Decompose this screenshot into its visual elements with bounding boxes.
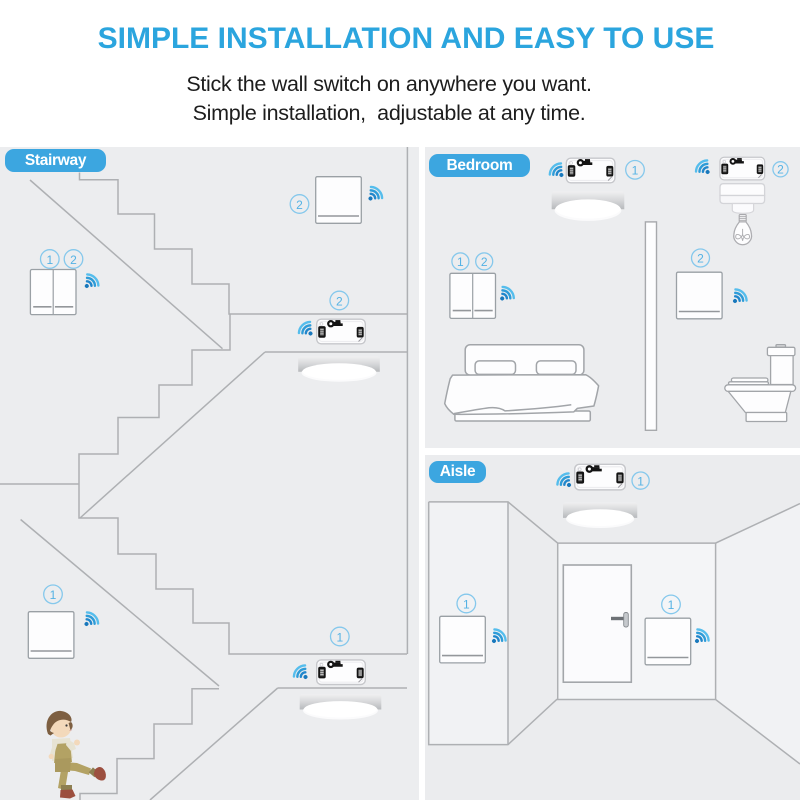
svg-text:2: 2 [697,252,704,266]
svg-text:2: 2 [70,253,77,267]
svg-text:1: 1 [632,164,639,178]
svg-text:1: 1 [336,630,343,644]
svg-text:2: 2 [296,198,303,212]
svg-text:2: 2 [336,294,343,308]
svg-text:1: 1 [463,597,470,611]
svg-text:1: 1 [50,588,57,602]
svg-text:2: 2 [481,255,488,269]
svg-text:1: 1 [637,474,644,488]
svg-text:1: 1 [46,253,53,267]
svg-text:1: 1 [457,255,464,269]
svg-text:1: 1 [668,598,675,612]
svg-text:2: 2 [777,163,784,177]
